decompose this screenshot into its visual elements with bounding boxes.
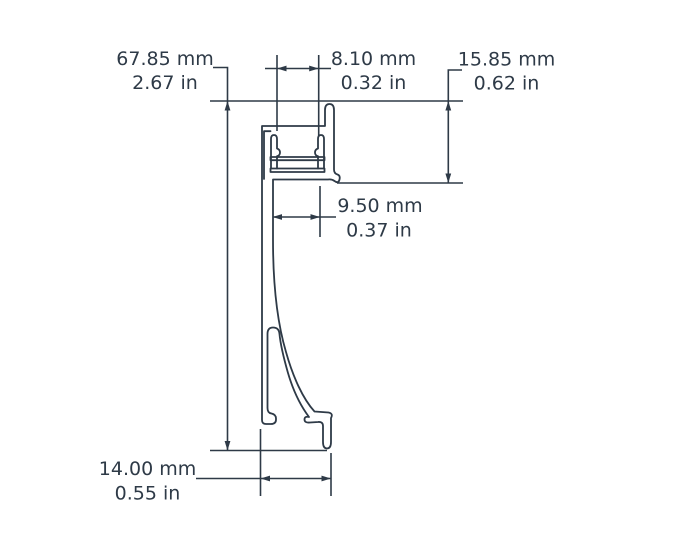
arrow-right-icon [322,476,332,482]
lip-height-in-label: 0.62 in [474,73,540,95]
arrow-down-icon [445,174,451,184]
arrow-up-icon [445,101,451,111]
drawing-canvas: 67.85 mm 2.67 in 8.10 mm 0.32 in 15.85 m… [0,0,676,558]
arrow-right-icon [309,66,319,72]
arrow-left-icon [261,476,271,482]
channel-floor [271,169,325,173]
profile-cross-section-drawing: 67.85 mm 2.67 in 8.10 mm 0.32 in 15.85 m… [0,0,676,558]
channel-right-wall [315,135,324,169]
base-width-mm-label: 14.00 mm [99,458,196,480]
arrow-down-icon [225,441,231,451]
arrow-left-icon [277,66,287,72]
arrow-left-icon [273,214,283,220]
total-height-in-label: 2.67 in [132,72,198,94]
total-height-leader [213,68,228,451]
arrow-right-icon [311,214,321,220]
channel-left-wall [271,135,280,169]
lip-height-mm-label: 15.85 mm [458,49,555,71]
channel-width-mm-label: 9.50 mm [337,195,422,217]
flange-underside-line [264,131,271,179]
base-width-in-label: 0.55 in [115,483,181,505]
diffuser-cover [271,157,325,160]
arrow-up-icon [225,101,231,111]
total-height-mm-label: 67.85 mm [116,48,213,70]
slot-width-in-label: 0.32 in [341,72,407,94]
profile-outline [262,104,340,449]
lip-height-leader [448,70,462,183]
channel-width-in-label: 0.37 in [346,220,412,242]
slot-width-mm-label: 8.10 mm [331,48,416,70]
